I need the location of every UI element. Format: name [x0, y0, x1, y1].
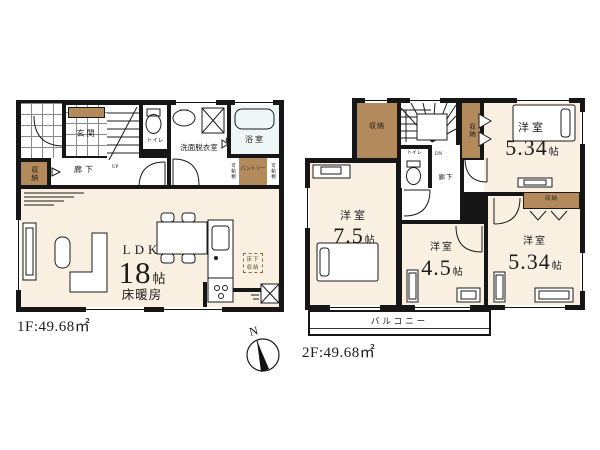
- storage-nw-label: 収納: [357, 123, 397, 131]
- shelf-right-label: 可動棚: [267, 158, 279, 185]
- room-w-size-unit: 帖: [365, 231, 375, 246]
- stairs-down-icon: [401, 103, 456, 142]
- hallway-1f-label: 廊下: [74, 166, 96, 175]
- washroom-door-arc: [173, 159, 199, 185]
- compass-icon: N: [236, 322, 292, 378]
- balcony: バルコニー: [308, 310, 491, 336]
- underfloor-line1: 床下: [244, 256, 262, 264]
- shelf-se-icon: [494, 272, 505, 302]
- storage-mid-label: 収納: [462, 103, 480, 158]
- washroom-label: 洗面脱衣室: [171, 144, 227, 152]
- floor2-area-label: 2F:49.68㎡: [302, 341, 375, 362]
- room-w-door-arc: [404, 190, 430, 216]
- room-se-size: 5.34帖: [494, 249, 576, 275]
- room-se-door-arc: [494, 198, 520, 224]
- toilet-2f-icon: [407, 161, 421, 185]
- room-s-size: 4.5帖: [403, 255, 481, 281]
- closet-door-mark-1: [479, 114, 491, 128]
- fridge-icon: [249, 284, 279, 303]
- genkan-label: 玄関: [66, 130, 107, 139]
- door-mark-hall: [52, 168, 60, 176]
- tv-board-icon: [23, 223, 36, 280]
- room-w-name: 洋室: [322, 210, 386, 222]
- room-w-size: 7.5帖: [313, 223, 395, 249]
- stairs-up-label: UP: [112, 165, 119, 170]
- sink-icon: [173, 110, 195, 126]
- washing-machine-icon: [202, 108, 224, 133]
- room-se-size-num: 5.34: [508, 249, 551, 275]
- room-s-name: 洋室: [411, 242, 473, 253]
- room-ne-door-arc: [465, 158, 487, 182]
- storage-1f-label: 収納: [21, 162, 47, 185]
- nightstand-s-icon: [457, 288, 480, 302]
- compass-north-label: N: [248, 323, 260, 339]
- closet-e-label: 収納: [523, 196, 580, 202]
- underfloor-storage-label: 床下 収納: [243, 253, 263, 273]
- pantry-label: パントリー: [239, 167, 267, 173]
- tv-board-ne-icon: [518, 178, 552, 187]
- floor2-plan: DN 収納 収納 トイレ 廊下 収納 洋室 5.34帖 洋室 7.5帖 洋室 4…: [305, 98, 585, 310]
- front-door-arc: [34, 116, 64, 146]
- room-se-name: 洋室: [504, 236, 566, 247]
- ldk-size-unit: 帖: [152, 268, 165, 287]
- chest-se-icon: [535, 288, 573, 302]
- room-s-size-num: 4.5: [421, 255, 452, 281]
- balcony-rail: [310, 328, 489, 329]
- kitchen-counter-icon: [208, 220, 233, 302]
- room-ne-size: 5.34帖: [490, 135, 574, 161]
- ldk-floorheating-label: 床暖房: [106, 289, 178, 303]
- toilet-2f-label: トイレ: [401, 151, 428, 157]
- toilet-icon: [146, 109, 161, 134]
- ldk-shutter-lines: [24, 193, 84, 205]
- room-ne-size-unit: 帖: [549, 143, 559, 158]
- floor1-plan: UP 玄関 トイレ 洗面脱衣室 浴室 収納 廊下 パントリー 可動棚 可動棚 L…: [16, 100, 284, 312]
- room-se-size-unit: 帖: [552, 257, 562, 272]
- stairs-down-label: DN: [435, 152, 443, 157]
- coffee-table-icon: [55, 237, 70, 268]
- hallway-2f-label: 廊下: [432, 174, 460, 181]
- ldk-door-arc: [139, 162, 165, 188]
- floor1-area-label: 1F:49.68㎡: [17, 315, 90, 336]
- bath-label: 浴室: [231, 136, 279, 145]
- hanger-icons: [530, 211, 567, 220]
- underfloor-line2: 収納: [244, 264, 262, 272]
- ldk-size-number: 18: [118, 255, 151, 291]
- room-s-size-unit: 帖: [453, 263, 463, 278]
- ldk-size-label: 18帖: [104, 255, 180, 291]
- balcony-label: バルコニー: [310, 317, 489, 326]
- sofa-icon: [70, 233, 107, 292]
- shelf-left-label: 可動棚: [227, 158, 239, 185]
- room-ne-name: 洋室: [502, 122, 562, 134]
- room-w-size-num: 7.5: [333, 223, 364, 249]
- toilet-1f-label: トイレ: [143, 138, 167, 144]
- room-ne-size-num: 5.34: [505, 135, 548, 161]
- floorplan-canvas: UP 玄関 トイレ 洗面脱衣室 浴室 収納 廊下 パントリー 可動棚 可動棚 L…: [0, 0, 600, 450]
- desk-w-icon: [313, 165, 350, 178]
- stairs-icon: [107, 107, 139, 160]
